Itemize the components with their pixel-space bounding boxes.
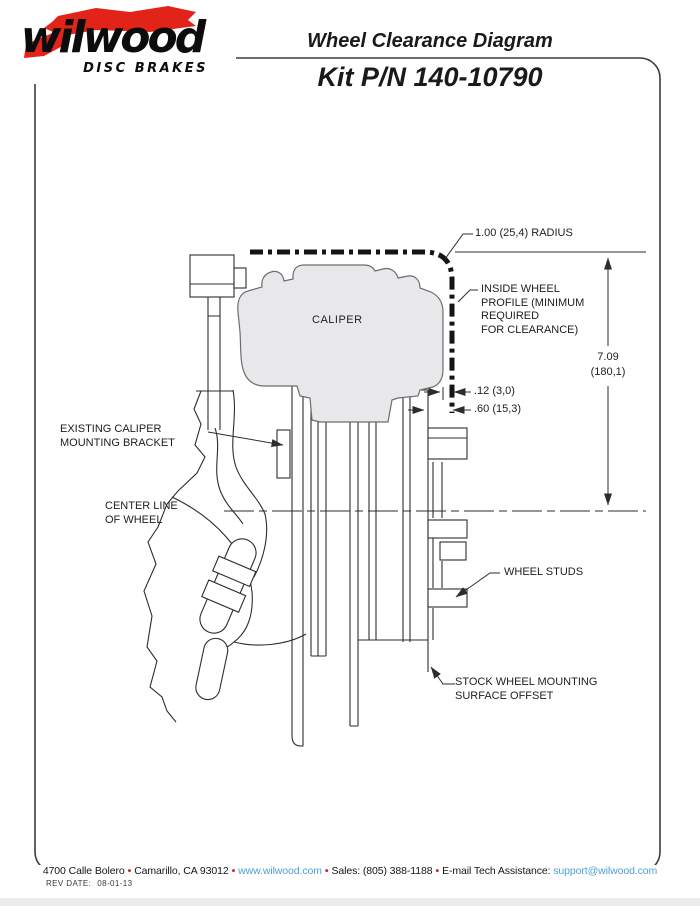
footer-contact-line: 4700 Calle Bolero•Camarillo, CA 93012•ww… xyxy=(36,865,664,877)
footer-address: 4700 Calle Bolero xyxy=(43,865,125,877)
mounting-bracket-label: EXISTING CALIPER MOUNTING BRACKET xyxy=(60,423,175,450)
abs-sensor-shape xyxy=(190,255,246,430)
footer-bullet: • xyxy=(229,865,239,877)
footer-email-label: E-mail Tech Assistance: xyxy=(442,865,550,877)
center-line-label: CENTER LINE OF WHEEL xyxy=(105,500,178,527)
footer-bullet: • xyxy=(322,865,332,877)
radius-label: 1.00 (25,4) RADIUS xyxy=(475,227,573,241)
gap-dimension-1-label: .12 (3,0) xyxy=(474,385,515,399)
height-dimension-label: 7.09 (180,1) xyxy=(580,350,636,380)
page-title: Wheel Clearance Diagram xyxy=(245,30,615,53)
wilwood-logo: wilwood DISC BRAKES xyxy=(0,0,236,84)
footer-email-link[interactable]: support@wilwood.com xyxy=(553,865,657,877)
footer-bullet: • xyxy=(432,865,442,877)
logo-tagline-text: DISC BRAKES xyxy=(83,61,208,76)
caliper-label: CALIPER xyxy=(312,314,363,328)
mounting-offset-label: STOCK WHEEL MOUNTING SURFACE OFFSET xyxy=(455,676,597,703)
wheel-studs-shape xyxy=(428,428,467,607)
rev-date: REV DATE:08-01-13 xyxy=(46,879,138,888)
kit-part-number: Kit P/N 140-10790 xyxy=(245,62,615,93)
caliper-shape xyxy=(238,265,443,422)
inside-wheel-profile-label: INSIDE WHEEL PROFILE (MINIMUM REQUIRED F… xyxy=(481,283,584,337)
footer-sales-phone: Sales: (805) 388-1188 xyxy=(331,865,432,877)
rev-date-value: 08-01-13 xyxy=(97,879,132,888)
wheel-studs-label: WHEEL STUDS xyxy=(504,566,583,580)
radius-leader xyxy=(445,234,473,259)
footer-city: Camarillo, CA 93012 xyxy=(134,865,228,877)
logo-brand-text: wilwood xyxy=(21,12,207,63)
gap-dimension-2-label: .60 (15,3) xyxy=(474,403,521,417)
tie-rod-shape xyxy=(190,532,266,702)
rotor-hub-shape xyxy=(292,372,442,746)
footer-website-link[interactable]: www.wilwood.com xyxy=(238,865,322,877)
rev-date-label: REV DATE: xyxy=(46,879,91,888)
caliper-bracket-shape xyxy=(277,430,290,478)
diagram-canvas xyxy=(0,0,700,906)
bracket-leader xyxy=(208,432,283,445)
footer-bullet: • xyxy=(125,865,135,877)
inside-wheel-leader xyxy=(458,290,478,302)
offset-leader xyxy=(431,667,455,684)
page-border xyxy=(35,58,660,872)
